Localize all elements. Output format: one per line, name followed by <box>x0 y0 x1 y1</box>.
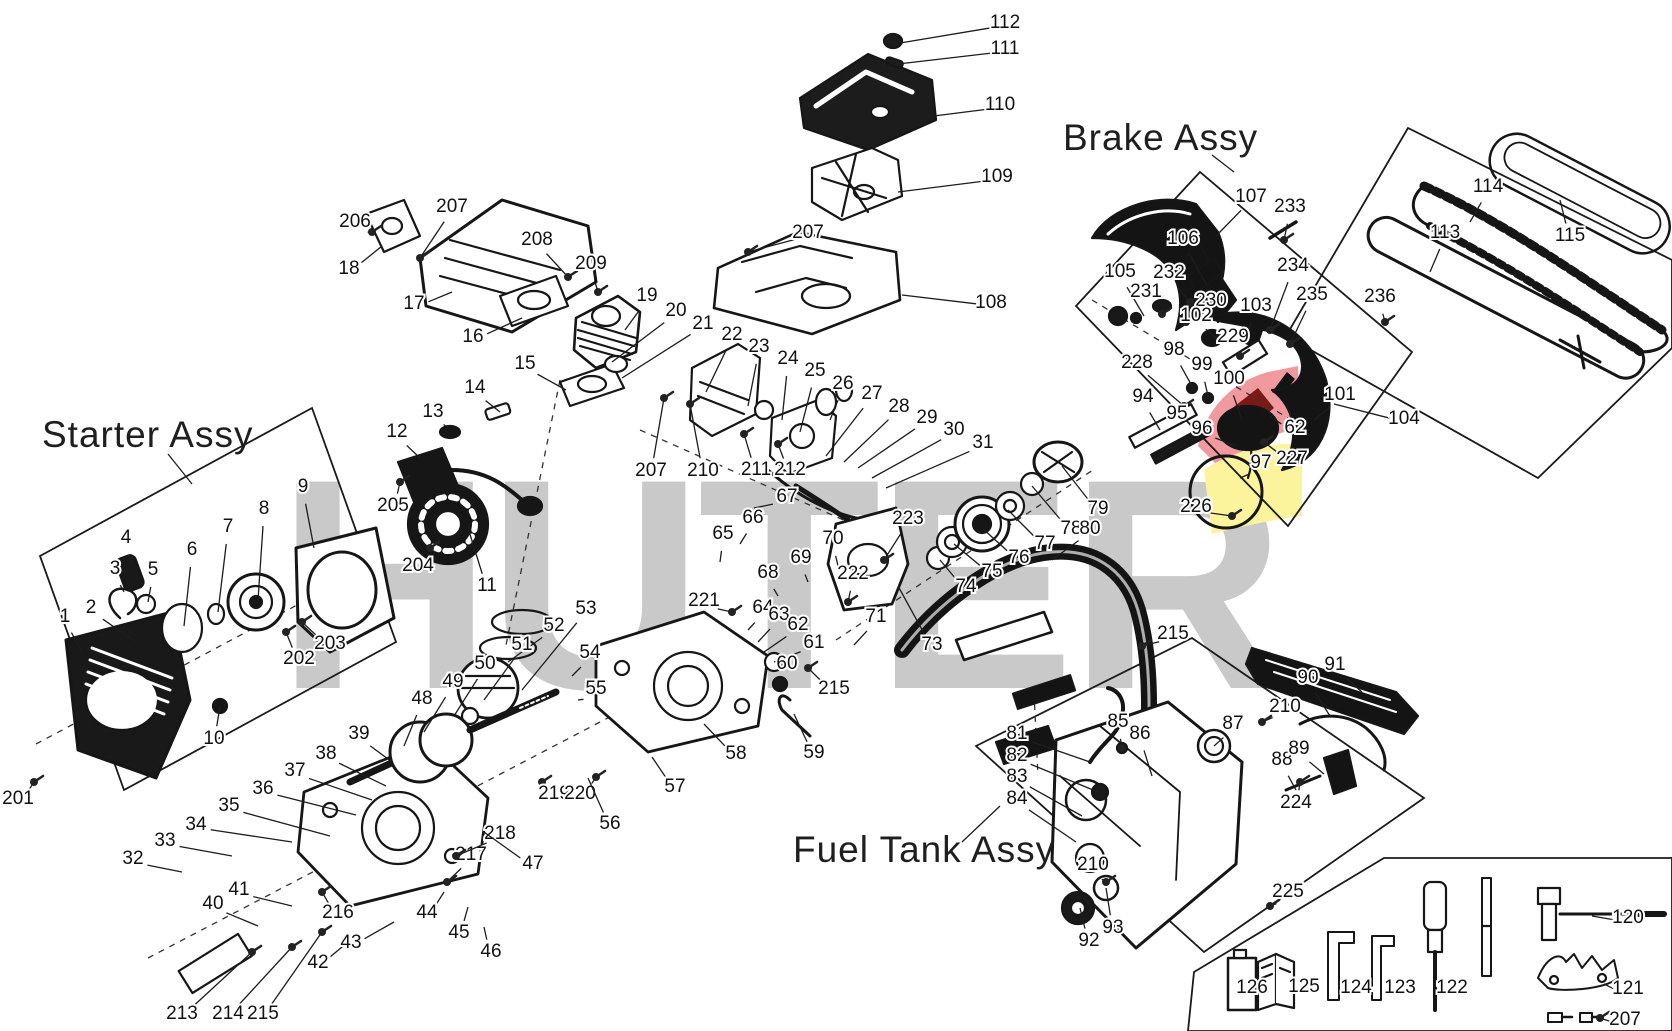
part-callout-215: 215 <box>247 926 331 1024</box>
part-label-87: 87 <box>1222 713 1243 734</box>
part-label-74: 74 <box>955 576 977 597</box>
part-label-49: 49 <box>442 671 463 692</box>
part-label-4: 4 <box>121 527 132 548</box>
part-label-207: 207 <box>436 196 468 217</box>
part-label-106: 106 <box>1167 228 1199 249</box>
part-label-101: 101 <box>1324 384 1356 405</box>
part-label-56: 56 <box>599 813 620 834</box>
leader-line-7 <box>218 544 226 612</box>
part-label-207: 207 <box>1609 1009 1641 1030</box>
muffler-bracket-shape <box>366 200 420 252</box>
part-label-39: 39 <box>348 723 369 744</box>
part-label-103: 103 <box>1240 295 1272 316</box>
part-label-65: 65 <box>712 523 733 544</box>
part-label-203: 203 <box>314 633 346 654</box>
leader-line-40 <box>226 913 258 926</box>
part-label-99: 99 <box>1191 354 1212 375</box>
part-label-12: 12 <box>386 421 407 442</box>
part-label-67: 67 <box>776 486 797 507</box>
part-callout-233: 233 <box>1274 196 1306 244</box>
part-label-21: 21 <box>692 313 713 334</box>
part-callout-235: 235 <box>1286 284 1328 348</box>
part-callout-109: 109 <box>898 166 1013 192</box>
part-callout-125: 125 <box>1288 976 1320 997</box>
nut-60-shape <box>773 677 787 691</box>
leader-line-109 <box>898 181 982 192</box>
part-label-125: 125 <box>1288 976 1320 997</box>
tool-rod-shape <box>1482 878 1491 976</box>
leader-line-33 <box>180 846 232 856</box>
part-label-52: 52 <box>543 615 564 636</box>
part-callout-15: 15 <box>514 353 566 390</box>
part-label-79: 79 <box>1087 498 1108 519</box>
part-callout-123: 123 <box>1384 977 1416 998</box>
part-label-85: 85 <box>1107 711 1128 732</box>
part-label-92: 92 <box>1078 930 1099 951</box>
part-label-11: 11 <box>477 575 497 596</box>
part-label-27: 27 <box>861 383 882 404</box>
diagram-svg: HUTER <box>0 0 1672 1031</box>
recoil-pulley-shape <box>228 574 284 630</box>
part-callout-124: 124 <box>1340 977 1372 998</box>
fuel-tank-assy-label: Fuel Tank Assy <box>793 829 1055 870</box>
part-label-7: 7 <box>223 516 234 537</box>
part-label-71: 71 <box>865 606 886 627</box>
part-label-59: 59 <box>803 742 824 763</box>
part-callout-220: 220 <box>564 771 605 804</box>
part-label-43: 43 <box>340 932 361 953</box>
leader-line-120 <box>1592 916 1613 920</box>
part-label-100: 100 <box>1213 368 1245 389</box>
part-label-57: 57 <box>664 776 685 797</box>
part-label-107: 107 <box>1235 186 1267 207</box>
part-label-53: 53 <box>575 598 596 619</box>
part-label-41: 41 <box>228 879 249 900</box>
part-callout-107: 107 <box>1216 186 1267 236</box>
leader-line-18 <box>361 246 382 263</box>
woodruff-key-shape <box>440 426 460 438</box>
tool-screws-shape <box>1548 1013 1600 1022</box>
part-label-10: 10 <box>203 728 224 749</box>
part-label-50: 50 <box>474 653 495 674</box>
air-filter-cover-shape <box>800 54 936 150</box>
leader-line-108 <box>902 295 976 304</box>
leader-line-115 <box>1560 200 1566 224</box>
part-callout-45: 45 <box>448 907 469 943</box>
part-label-86: 86 <box>1129 723 1150 744</box>
part-callout-108: 108 <box>902 292 1007 313</box>
part-label-95: 95 <box>1166 403 1187 424</box>
part-callout-32: 32 <box>122 848 182 872</box>
part-label-25: 25 <box>804 360 825 381</box>
part-label-33: 33 <box>154 830 175 851</box>
part-label-222: 222 <box>837 563 869 584</box>
part-label-42: 42 <box>307 952 328 973</box>
part-label-13: 13 <box>422 401 443 422</box>
part-label-9: 9 <box>298 476 309 497</box>
part-label-89: 89 <box>1288 738 1309 759</box>
part-label-36: 36 <box>252 778 273 799</box>
part-callout-41: 41 <box>228 879 292 906</box>
part-label-91: 91 <box>1324 654 1345 675</box>
part-label-17: 17 <box>403 293 424 314</box>
part-label-63: 63 <box>768 604 789 625</box>
part-label-225: 225 <box>1272 881 1304 902</box>
part-label-202: 202 <box>283 648 315 669</box>
part-label-124: 124 <box>1340 977 1372 998</box>
part-label-113: 113 <box>1430 222 1460 243</box>
part-label-32: 32 <box>122 848 143 869</box>
part-label-73: 73 <box>921 634 942 655</box>
leader-line-57 <box>652 757 666 777</box>
part-label-209: 209 <box>575 253 607 274</box>
part-callout-34: 34 <box>185 814 292 842</box>
part-label-213: 213 <box>166 1003 198 1024</box>
leader-line-98 <box>1181 365 1192 386</box>
top-cover-shape <box>714 232 900 334</box>
part-label-236: 236 <box>1364 286 1396 307</box>
parts-diagram: HUTER <box>0 0 1672 1031</box>
rewind-spring-shape <box>162 604 202 652</box>
part-callout-122: 122 <box>1436 977 1468 998</box>
part-label-108: 108 <box>975 292 1007 313</box>
cylinder-shape <box>574 296 640 368</box>
part-label-122: 122 <box>1436 977 1468 998</box>
part-callout-5: 5 <box>148 559 159 602</box>
part-label-110: 110 <box>985 94 1015 115</box>
part-label-22: 22 <box>721 324 742 345</box>
part-label-105: 105 <box>1104 261 1136 282</box>
part-label-75: 75 <box>981 561 1002 582</box>
part-label-5: 5 <box>148 559 159 580</box>
part-label-210: 210 <box>687 460 719 481</box>
part-label-1: 1 <box>60 606 71 627</box>
part-label-216: 216 <box>322 902 354 923</box>
part-label-207: 207 <box>635 460 667 481</box>
part-label-51: 51 <box>511 634 532 655</box>
starter-rope-shape <box>110 589 137 618</box>
part-label-44: 44 <box>416 902 438 923</box>
part-label-102: 102 <box>1180 305 1212 326</box>
part-label-98: 98 <box>1163 339 1184 360</box>
part-label-109: 109 <box>981 166 1013 187</box>
leader-line-43 <box>365 922 394 939</box>
part-label-35: 35 <box>218 795 239 816</box>
part-label-211: 211 <box>741 459 771 480</box>
part-label-80: 80 <box>1079 518 1100 539</box>
part-label-223: 223 <box>892 508 924 529</box>
part-label-66: 66 <box>742 507 763 528</box>
part-label-47: 47 <box>522 853 543 874</box>
part-label-3: 3 <box>110 558 121 579</box>
part-label-54: 54 <box>579 642 601 663</box>
part-label-46: 46 <box>480 941 501 962</box>
part-label-218: 218 <box>484 823 516 844</box>
part-label-226: 226 <box>1180 496 1212 517</box>
part-label-231: 231 <box>1130 281 1162 302</box>
part-label-229: 229 <box>1217 326 1249 347</box>
part-label-221: 221 <box>688 590 720 611</box>
leader-line-45 <box>464 907 468 921</box>
part-label-60: 60 <box>776 653 797 674</box>
part-label-233: 233 <box>1274 196 1306 217</box>
part-callout-46: 46 <box>480 927 501 962</box>
part-label-115: 115 <box>1555 225 1585 246</box>
part-callout-18: 18 <box>338 246 382 279</box>
rope-guide-shape <box>137 595 155 613</box>
leader-line-41 <box>253 897 292 906</box>
part-callout-43: 43 <box>340 922 394 953</box>
part-label-37: 37 <box>284 760 305 781</box>
part-label-61: 61 <box>803 632 824 653</box>
brake-assy-label: Brake Assy <box>1063 117 1258 158</box>
part-label-112: 112 <box>990 12 1020 33</box>
part-label-2: 2 <box>86 597 97 618</box>
part-label-227: 227 <box>1276 448 1308 469</box>
part-callout-126: 126 <box>1236 977 1268 998</box>
part-label-16: 16 <box>462 326 483 347</box>
part-label-76: 76 <box>1008 547 1029 568</box>
leader-line-55 <box>578 699 584 700</box>
part-label-208: 208 <box>521 229 553 250</box>
part-label-210: 210 <box>1077 854 1109 875</box>
part-label-83: 83 <box>1006 766 1027 787</box>
part-label-207: 207 <box>792 222 824 243</box>
part-label-20: 20 <box>665 300 686 321</box>
part-label-228: 228 <box>1121 352 1153 373</box>
leader-line-107 <box>1216 210 1241 236</box>
part-label-18: 18 <box>338 258 359 279</box>
part-label-77: 77 <box>1034 533 1055 554</box>
leader-line-89 <box>1309 762 1324 774</box>
part-label-205: 205 <box>377 495 409 516</box>
part-label-29: 29 <box>916 407 937 428</box>
part-label-26: 26 <box>832 373 853 394</box>
part-label-82: 82 <box>1006 745 1027 766</box>
part-callout-120: 120 <box>1592 907 1644 928</box>
part-label-96: 96 <box>1191 418 1212 439</box>
part-label-201: 201 <box>2 788 34 809</box>
part-label-90: 90 <box>1297 667 1318 688</box>
part-label-206: 206 <box>339 211 371 232</box>
part-label-204: 204 <box>402 555 434 576</box>
part-label-214: 214 <box>212 1003 244 1024</box>
part-label-111: 111 <box>991 38 1020 59</box>
part-callout-57: 57 <box>652 757 686 797</box>
tool-socket-wrench-shape <box>1538 888 1664 940</box>
part-label-93: 93 <box>1102 917 1123 938</box>
sprocket-77-shape <box>996 492 1024 520</box>
part-label-31: 31 <box>972 432 993 453</box>
part-label-62: 62 <box>1284 417 1305 438</box>
part-label-126: 126 <box>1236 977 1268 998</box>
part-label-78: 78 <box>1060 518 1081 539</box>
part-label-224: 224 <box>1280 792 1312 813</box>
part-label-28: 28 <box>888 396 909 417</box>
part-label-234: 234 <box>1277 255 1309 276</box>
part-label-40: 40 <box>202 893 223 914</box>
part-callout-236: 236 <box>1364 286 1396 326</box>
part-label-8: 8 <box>259 498 270 519</box>
part-label-210: 210 <box>1269 696 1301 717</box>
part-label-81: 81 <box>1006 723 1027 744</box>
part-callout-111: 111 <box>898 38 1019 64</box>
leader-line-34 <box>211 830 292 842</box>
part-label-232: 232 <box>1153 262 1185 283</box>
part-label-94: 94 <box>1132 386 1154 407</box>
leader-line-44 <box>437 892 444 904</box>
part-label-6: 6 <box>187 539 198 560</box>
part-label-70: 70 <box>822 528 843 549</box>
starter-assy-label: Starter Assy <box>42 414 253 455</box>
part-label-45: 45 <box>448 922 469 943</box>
part-callout-44: 44 <box>416 892 444 923</box>
part-label-235: 235 <box>1296 284 1328 305</box>
part-label-84: 84 <box>1006 788 1028 809</box>
part-label-68: 68 <box>757 562 778 583</box>
part-label-23: 23 <box>748 336 769 357</box>
air-filter-shape <box>812 148 902 220</box>
part-label-19: 19 <box>636 285 657 306</box>
part-label-55: 55 <box>585 678 606 699</box>
part-label-121: 121 <box>1612 978 1644 999</box>
part-callout-201: 201 <box>2 776 43 809</box>
clutch-79-shape <box>1034 442 1082 482</box>
part-label-104: 104 <box>1388 408 1420 429</box>
part-label-215: 215 <box>247 1003 279 1024</box>
part-label-114: 114 <box>1473 176 1504 197</box>
part-label-24: 24 <box>777 348 799 369</box>
part-label-15: 15 <box>514 353 535 374</box>
spring-case-shape <box>208 604 224 624</box>
part-label-38: 38 <box>315 743 336 764</box>
part-label-212: 212 <box>774 459 806 480</box>
part-label-34: 34 <box>185 814 207 835</box>
part-callout-207: 207 <box>1596 1009 1641 1030</box>
part-callout-89: 89 <box>1288 738 1324 774</box>
part-label-215: 215 <box>818 678 850 699</box>
part-callout-98: 98 <box>1163 339 1192 386</box>
part-label-30: 30 <box>943 419 964 440</box>
part-callout-225: 225 <box>1266 881 1304 910</box>
leader-line-46 <box>484 927 487 940</box>
part-label-120: 120 <box>1612 907 1644 928</box>
filter-knob-shape <box>884 34 902 48</box>
leader-line-32 <box>147 865 182 872</box>
part-label-14: 14 <box>464 377 486 398</box>
leader-line-112 <box>900 28 990 43</box>
part-label-58: 58 <box>725 743 746 764</box>
part-label-48: 48 <box>411 688 432 709</box>
part-label-215: 215 <box>1157 623 1189 644</box>
leader-line-104 <box>1334 404 1389 418</box>
part-callout-104: 104 <box>1334 404 1420 429</box>
part-label-123: 123 <box>1384 977 1416 998</box>
leader-line-111 <box>898 53 990 64</box>
part-label-69: 69 <box>790 547 811 568</box>
part-label-97: 97 <box>1250 452 1271 473</box>
